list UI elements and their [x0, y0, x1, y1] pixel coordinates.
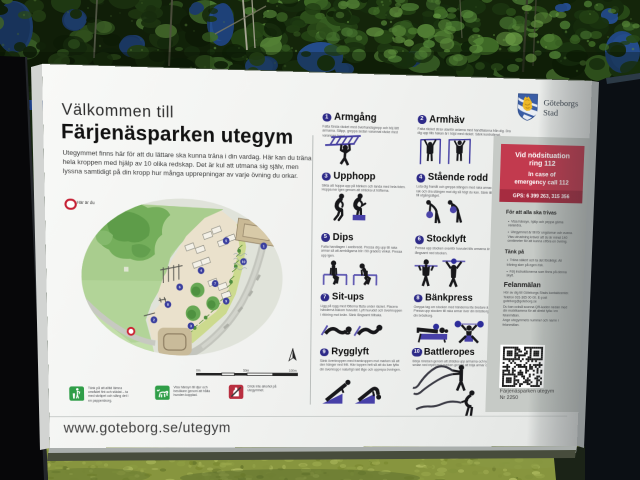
svg-text:2: 2	[153, 318, 155, 322]
svg-text:9: 9	[225, 299, 227, 303]
svg-text:6: 6	[178, 285, 180, 289]
svg-text:5: 5	[225, 239, 227, 243]
svg-text:0m: 0m	[196, 369, 201, 373]
svg-text:8: 8	[166, 303, 168, 307]
svg-text:3: 3	[190, 324, 192, 328]
svg-text:1: 1	[262, 244, 264, 248]
svg-text:100m: 100m	[289, 369, 297, 373]
svg-text:4: 4	[200, 269, 202, 273]
svg-text:50m: 50m	[243, 369, 249, 373]
svg-text:7: 7	[214, 282, 216, 286]
svg-text:10: 10	[241, 260, 245, 264]
